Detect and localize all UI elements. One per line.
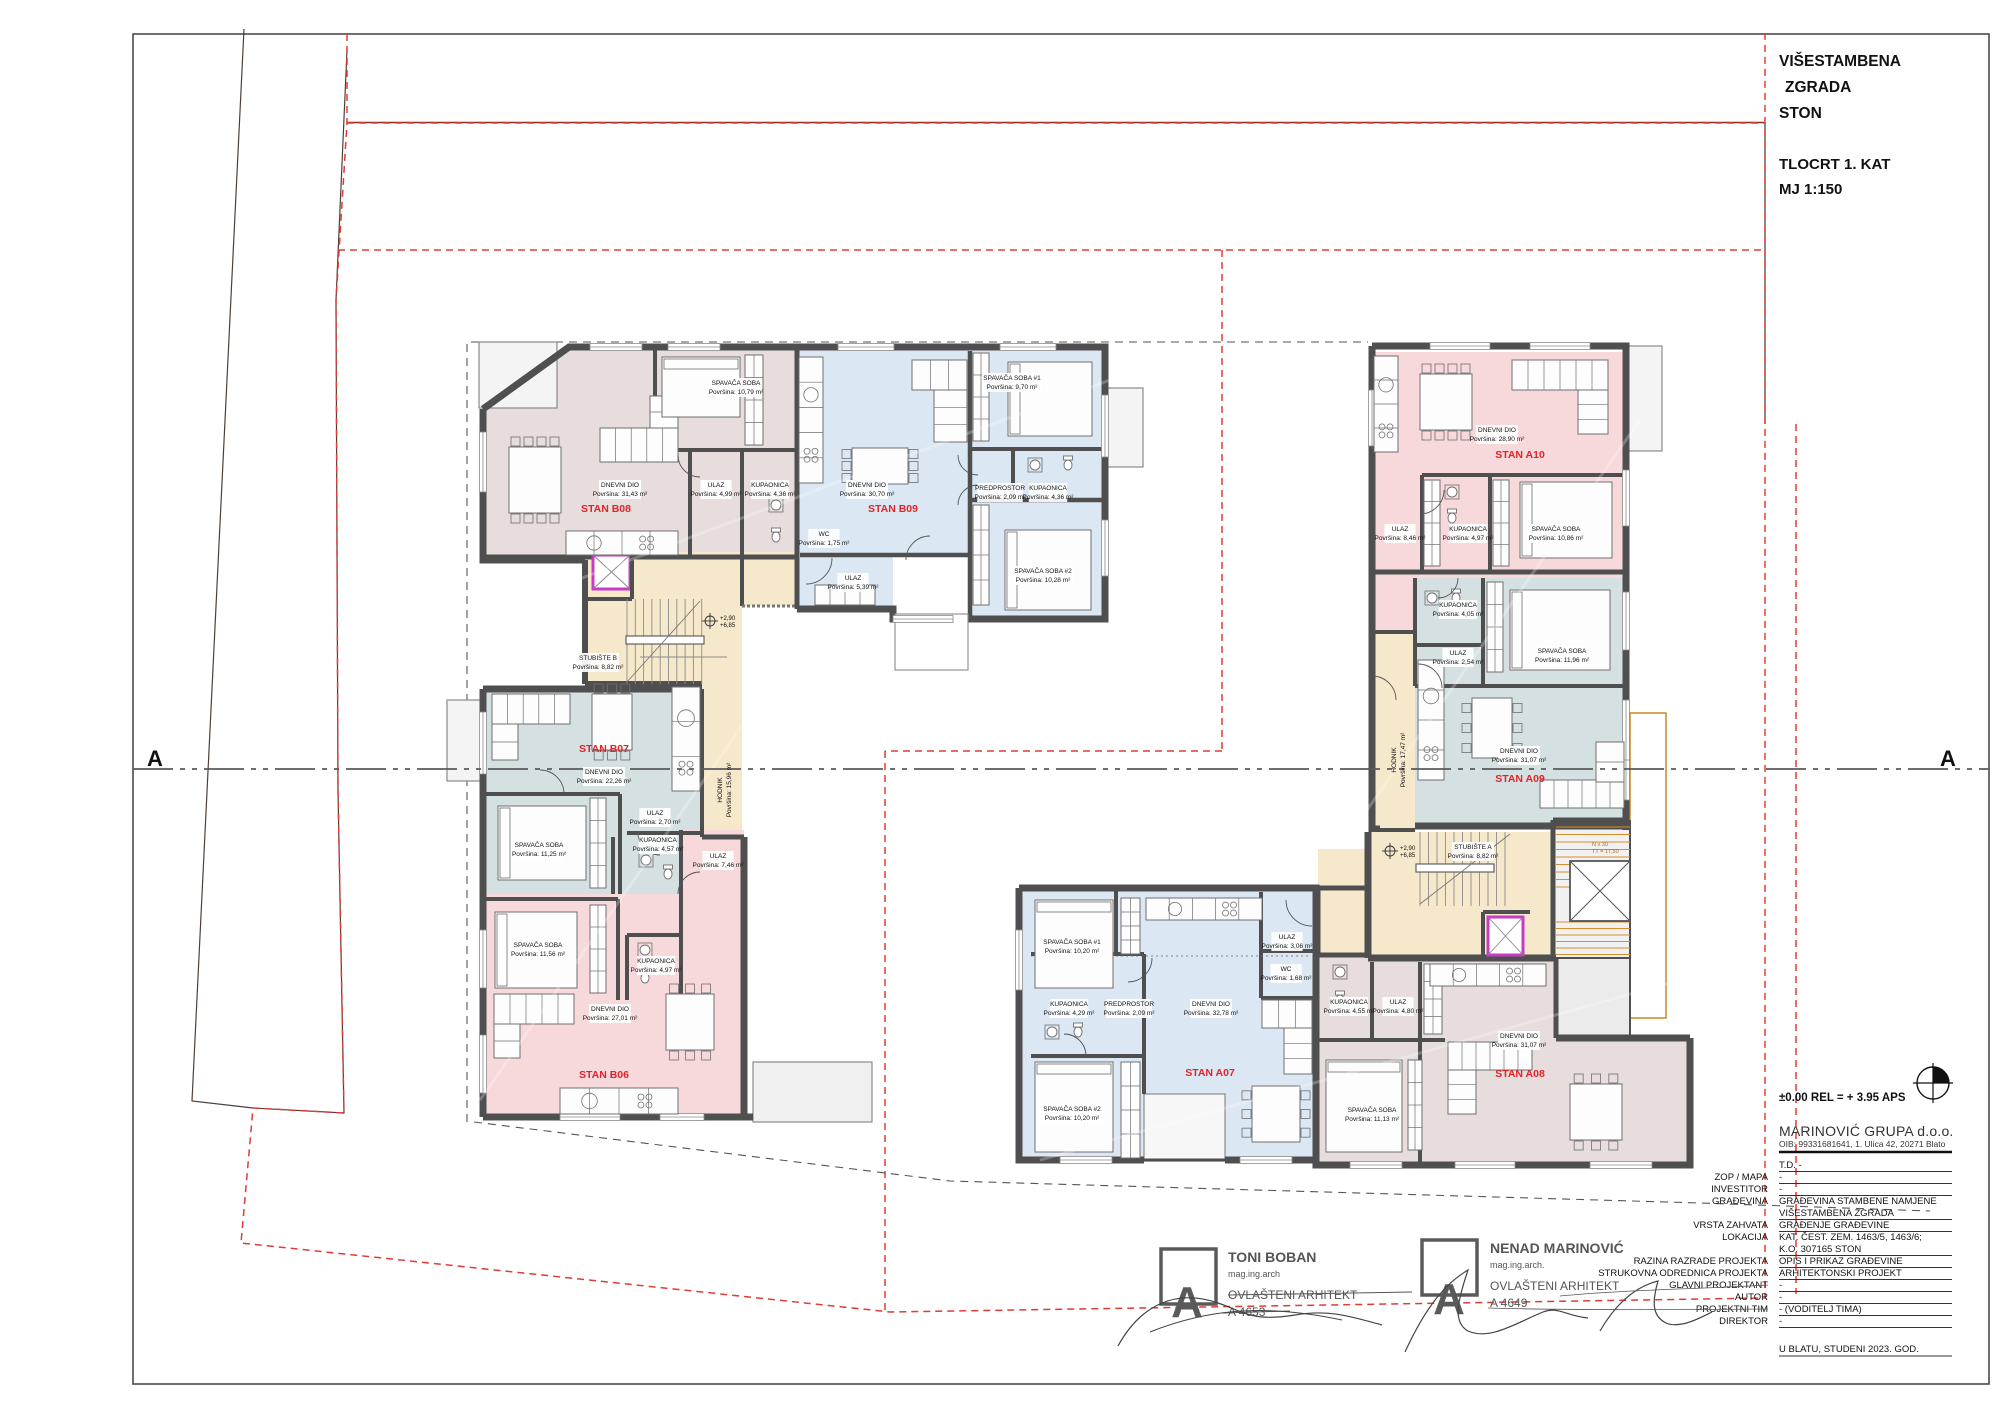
- svg-text:SPAVAČA SOBA: SPAVAČA SOBA: [1348, 1105, 1397, 1114]
- svg-text:-: -: [1779, 1172, 1782, 1183]
- svg-text:STON: STON: [1779, 105, 1822, 122]
- svg-text:DNEVNI DIO: DNEVNI DIO: [1500, 748, 1538, 755]
- svg-text:STRUKOVNA ODREDNICA PROJEKTA: STRUKOVNA ODREDNICA PROJEKTA: [1598, 1268, 1768, 1279]
- svg-text:NENAD MARINOVIĆ: NENAD MARINOVIĆ: [1490, 1239, 1624, 1256]
- svg-text:Površina: 4,80 m²: Površina: 4,80 m²: [1373, 1008, 1425, 1015]
- svg-text:DNEVNI DIO: DNEVNI DIO: [1500, 1033, 1538, 1040]
- svg-text:MARINOVIĆ GRUPA d.o.o.: MARINOVIĆ GRUPA d.o.o.: [1779, 1123, 1954, 1139]
- svg-text:SPAVAČA SOBA #2: SPAVAČA SOBA #2: [1014, 566, 1072, 575]
- svg-text:DIREKTOR: DIREKTOR: [1719, 1316, 1768, 1327]
- svg-text:Površina: 28,90 m²: Površina: 28,90 m²: [1470, 436, 1525, 443]
- svg-text:Površina: 7,46 m²: Površina: 7,46 m²: [693, 862, 745, 869]
- svg-text:LOKACIJA: LOKACIJA: [1722, 1232, 1769, 1243]
- svg-text:Površina: 4,55 m²: Površina: 4,55 m²: [1324, 1008, 1376, 1015]
- svg-text:SPAVAČA SOBA #1: SPAVAČA SOBA #1: [1043, 937, 1101, 946]
- svg-text:-: -: [1779, 1316, 1782, 1327]
- svg-text:RAZINA RAZRADE PROJEKTA: RAZINA RAZRADE PROJEKTA: [1634, 1256, 1769, 1267]
- svg-text:KUPAONICA: KUPAONICA: [1439, 602, 1477, 609]
- svg-text:WC: WC: [819, 531, 830, 538]
- svg-text:STAN B08: STAN B08: [581, 503, 631, 515]
- svg-text:SPAVAČA SOBA #1: SPAVAČA SOBA #1: [983, 373, 1041, 382]
- svg-text:OPIS I PRIKAZ GRAĐEVINE: OPIS I PRIKAZ GRAĐEVINE: [1779, 1256, 1903, 1267]
- svg-text:KUPAONICA: KUPAONICA: [639, 837, 677, 844]
- svg-text:VRSTA ZAHVATA: VRSTA ZAHVATA: [1693, 1220, 1768, 1231]
- svg-text:KUPAONICA: KUPAONICA: [1449, 526, 1487, 533]
- svg-text:SPAVAČA SOBA: SPAVAČA SOBA: [515, 840, 564, 849]
- svg-text:K.O. 307165 STON: K.O. 307165 STON: [1779, 1244, 1861, 1255]
- svg-text:Površina: 10,79 m²: Površina: 10,79 m²: [709, 389, 764, 396]
- svg-text:STAN B06: STAN B06: [579, 1069, 629, 1081]
- svg-text:Površina: 11,25 m²: Površina: 11,25 m²: [512, 851, 567, 858]
- svg-text:HODNIK: HODNIK: [717, 777, 724, 803]
- svg-text:Površina: 2,09 m²: Površina: 2,09 m²: [1104, 1010, 1156, 1017]
- svg-text:DNEVNI DIO: DNEVNI DIO: [1478, 427, 1516, 434]
- svg-text:Površina: 27,01 m²: Površina: 27,01 m²: [583, 1015, 638, 1022]
- svg-text:Površina: 15,96 m²: Površina: 15,96 m²: [726, 762, 733, 817]
- svg-text:Površina: 2,54 m²: Površina: 2,54 m²: [1433, 659, 1485, 666]
- svg-text:+6,85: +6,85: [1400, 853, 1416, 859]
- svg-text:Površina: 4,05 m²: Površina: 4,05 m²: [1433, 611, 1485, 618]
- svg-text:Površina: 11,96 m²: Površina: 11,96 m²: [1535, 657, 1590, 664]
- svg-text:Površina: 31,43 m²: Površina: 31,43 m²: [593, 491, 648, 498]
- svg-text:PREDPROSTOR: PREDPROSTOR: [1104, 1001, 1154, 1008]
- svg-text:TONI BOBAN: TONI BOBAN: [1228, 1249, 1316, 1265]
- svg-text:MJ 1:150: MJ 1:150: [1779, 181, 1842, 198]
- svg-text:mag.ing.arch.: mag.ing.arch.: [1490, 1260, 1545, 1270]
- svg-text:Površina: 8,82 m²: Površina: 8,82 m²: [1448, 853, 1500, 860]
- svg-text:DNEVNI DIO: DNEVNI DIO: [585, 769, 623, 776]
- svg-text:- (VODITELJ TIMA): - (VODITELJ TIMA): [1779, 1304, 1862, 1315]
- svg-text:OVLAŠTENI ARHITEKT: OVLAŠTENI ARHITEKT: [1490, 1278, 1620, 1293]
- svg-text:Površina: 4,57 m²: Površina: 4,57 m²: [633, 846, 685, 853]
- svg-text:SPAVAČA SOBA: SPAVAČA SOBA: [712, 378, 761, 387]
- svg-text:SPAVAČA SOBA #2: SPAVAČA SOBA #2: [1043, 1104, 1101, 1113]
- svg-text:Površina: 31,07 m²: Površina: 31,07 m²: [1492, 757, 1547, 764]
- svg-text:+2,90: +2,90: [720, 616, 736, 622]
- svg-text:STAN B09: STAN B09: [868, 503, 918, 515]
- svg-text:ULAZ: ULAZ: [647, 810, 664, 817]
- svg-text:STAN A07: STAN A07: [1185, 1067, 1235, 1079]
- svg-text:GRAĐEVINA STAMBENE NAMJENE: GRAĐEVINA STAMBENE NAMJENE: [1779, 1196, 1937, 1207]
- svg-text:STAN A08: STAN A08: [1495, 1068, 1545, 1080]
- svg-text:ZOP / MAPA: ZOP / MAPA: [1715, 1172, 1769, 1183]
- svg-text:GRAĐENJE GRAĐEVINE: GRAĐENJE GRAĐEVINE: [1779, 1220, 1889, 1231]
- svg-text:Površina: 5,39 m²: Površina: 5,39 m²: [828, 584, 880, 591]
- svg-text:Površina: 1,75 m²: Površina: 1,75 m²: [799, 540, 851, 547]
- svg-text:PREDPROSTOR: PREDPROSTOR: [975, 485, 1025, 492]
- svg-text:Površina: 4,99 m²: Površina: 4,99 m²: [691, 491, 743, 498]
- svg-text:Površina: 4,97 m²: Površina: 4,97 m²: [1443, 535, 1495, 542]
- svg-text:KAT. ČEST. ZEM. 1463/5, 1463/6: KAT. ČEST. ZEM. 1463/5, 1463/6;: [1779, 1232, 1922, 1243]
- svg-text:T.D. -: T.D. -: [1779, 1160, 1802, 1171]
- svg-text:Površina: 8,82 m²: Površina: 8,82 m²: [573, 664, 625, 671]
- svg-text:STUBIŠTE A: STUBIŠTE A: [1454, 842, 1492, 851]
- svg-text:STUBIŠTE B: STUBIŠTE B: [579, 653, 617, 662]
- svg-text:ULAZ: ULAZ: [710, 853, 727, 860]
- svg-text:Površina: 30,70 m²: Površina: 30,70 m²: [840, 491, 895, 498]
- svg-text:HODNIK: HODNIK: [1391, 747, 1398, 773]
- svg-text:SPAVAČA SOBA: SPAVAČA SOBA: [514, 940, 563, 949]
- svg-text:Površina: 1,68 m²: Površina: 1,68 m²: [1261, 975, 1313, 982]
- svg-text:mag.ing.arch: mag.ing.arch: [1228, 1269, 1280, 1279]
- svg-text:DNEVNI DIO: DNEVNI DIO: [848, 482, 886, 489]
- svg-text:VIŠESTAMBENA: VIŠESTAMBENA: [1779, 52, 1901, 70]
- svg-text:Površina: 11,13 m²: Površina: 11,13 m²: [1345, 1116, 1400, 1123]
- svg-text:Površina: 31,07 m²: Površina: 31,07 m²: [1492, 1042, 1547, 1049]
- svg-text:-: -: [1779, 1280, 1782, 1291]
- svg-text:Površina: 4,36 m²: Površina: 4,36 m²: [1023, 494, 1075, 501]
- svg-text:Površina: 10,28 m²: Površina: 10,28 m²: [1016, 577, 1071, 584]
- svg-text:Površina: 17,47 m²: Površina: 17,47 m²: [1400, 732, 1407, 787]
- svg-text:OIB: 99331681641, 1. Ulica 42,: OIB: 99331681641, 1. Ulica 42, 20271 Bla…: [1779, 1139, 1946, 1149]
- svg-text:STAN A09: STAN A09: [1495, 773, 1545, 785]
- svg-text:KUPAONICA: KUPAONICA: [1050, 1001, 1088, 1008]
- svg-text:ZGRADA: ZGRADA: [1785, 79, 1851, 96]
- svg-text:Površina: 2,70 m²: Površina: 2,70 m²: [630, 819, 682, 826]
- svg-text:ARHITEKTONSKI PROJEKT: ARHITEKTONSKI PROJEKT: [1779, 1268, 1902, 1279]
- svg-text:Površina: 11,56 m²: Površina: 11,56 m²: [511, 951, 566, 958]
- svg-text:INVESTITOR: INVESTITOR: [1711, 1184, 1768, 1195]
- svg-text:STAN A10: STAN A10: [1495, 449, 1545, 461]
- svg-text:SPAVAČA SOBA: SPAVAČA SOBA: [1532, 524, 1581, 533]
- svg-text:-: -: [1779, 1292, 1782, 1303]
- svg-text:GRAĐEVINA: GRAĐEVINA: [1712, 1196, 1769, 1207]
- svg-text:ULAZ: ULAZ: [1279, 934, 1296, 941]
- svg-text:ULAZ: ULAZ: [845, 575, 862, 582]
- svg-text:A: A: [147, 746, 163, 771]
- svg-text:STAN B07: STAN B07: [579, 743, 629, 755]
- svg-text:A: A: [1940, 746, 1956, 771]
- svg-text:KUPAONICA: KUPAONICA: [637, 958, 675, 965]
- svg-text:WC: WC: [1281, 966, 1292, 973]
- svg-text:AUTOR: AUTOR: [1735, 1292, 1768, 1303]
- svg-text:KUPAONICA: KUPAONICA: [1029, 485, 1067, 492]
- svg-text:KUPAONICA: KUPAONICA: [1330, 999, 1368, 1006]
- svg-text:SPAVAČA SOBA: SPAVAČA SOBA: [1538, 646, 1587, 655]
- svg-text:ULAZ: ULAZ: [1450, 650, 1467, 657]
- svg-text:Površina: 4,29 m²: Površina: 4,29 m²: [1044, 1010, 1096, 1017]
- svg-text:Površina: 9,70 m²: Površina: 9,70 m²: [987, 384, 1039, 391]
- svg-text:Površina: 4,97 m²: Površina: 4,97 m²: [631, 967, 683, 974]
- svg-text:ULAZ: ULAZ: [1390, 999, 1407, 1006]
- svg-text:DNEVNI DIO: DNEVNI DIO: [601, 482, 639, 489]
- svg-text:U BLATU, STUDENI 2023. GOD.: U BLATU, STUDENI 2023. GOD.: [1779, 1344, 1919, 1355]
- svg-text:Površina: 3,06 m²: Površina: 3,06 m²: [1262, 943, 1314, 950]
- svg-text:Površina: 2,09 m²: Površina: 2,09 m²: [975, 494, 1027, 501]
- svg-text:Površina: 22,26 m²: Površina: 22,26 m²: [577, 778, 632, 785]
- svg-text:Površina: 10,86 m²: Površina: 10,86 m²: [1529, 535, 1584, 542]
- svg-text:DNEVNI DIO: DNEVNI DIO: [591, 1006, 629, 1013]
- svg-text:Površina: 10,20 m²: Površina: 10,20 m²: [1045, 948, 1100, 955]
- svg-text:DNEVNI DIO: DNEVNI DIO: [1192, 1001, 1230, 1008]
- svg-text:-: -: [1779, 1184, 1782, 1195]
- svg-text:±0.00 REL = + 3.95 APS: ±0.00 REL = + 3.95 APS: [1779, 1092, 1906, 1104]
- svg-text:KUPAONICA: KUPAONICA: [751, 482, 789, 489]
- svg-text:VIŠESTAMBENA ZGRADA: VIŠESTAMBENA ZGRADA: [1779, 1208, 1895, 1219]
- svg-text:ULAZ: ULAZ: [1392, 526, 1409, 533]
- svg-text:Površina: 8,46 m²: Površina: 8,46 m²: [1375, 535, 1427, 542]
- svg-text:ULAZ: ULAZ: [708, 482, 725, 489]
- svg-text:Površina: 4,36 m²: Površina: 4,36 m²: [745, 491, 797, 498]
- svg-text:N x 30: N x 30: [1592, 842, 1608, 848]
- svg-text:Površina: 10,20 m²: Površina: 10,20 m²: [1045, 1115, 1100, 1122]
- svg-text:TLOCRT 1. KAT: TLOCRT 1. KAT: [1779, 156, 1890, 173]
- svg-text:+6,85: +6,85: [720, 623, 736, 629]
- svg-text:TT = 17,50: TT = 17,50: [1592, 849, 1619, 855]
- svg-text:Površina: 32,78 m²: Površina: 32,78 m²: [1184, 1010, 1239, 1017]
- svg-text:+2,90: +2,90: [1400, 846, 1416, 852]
